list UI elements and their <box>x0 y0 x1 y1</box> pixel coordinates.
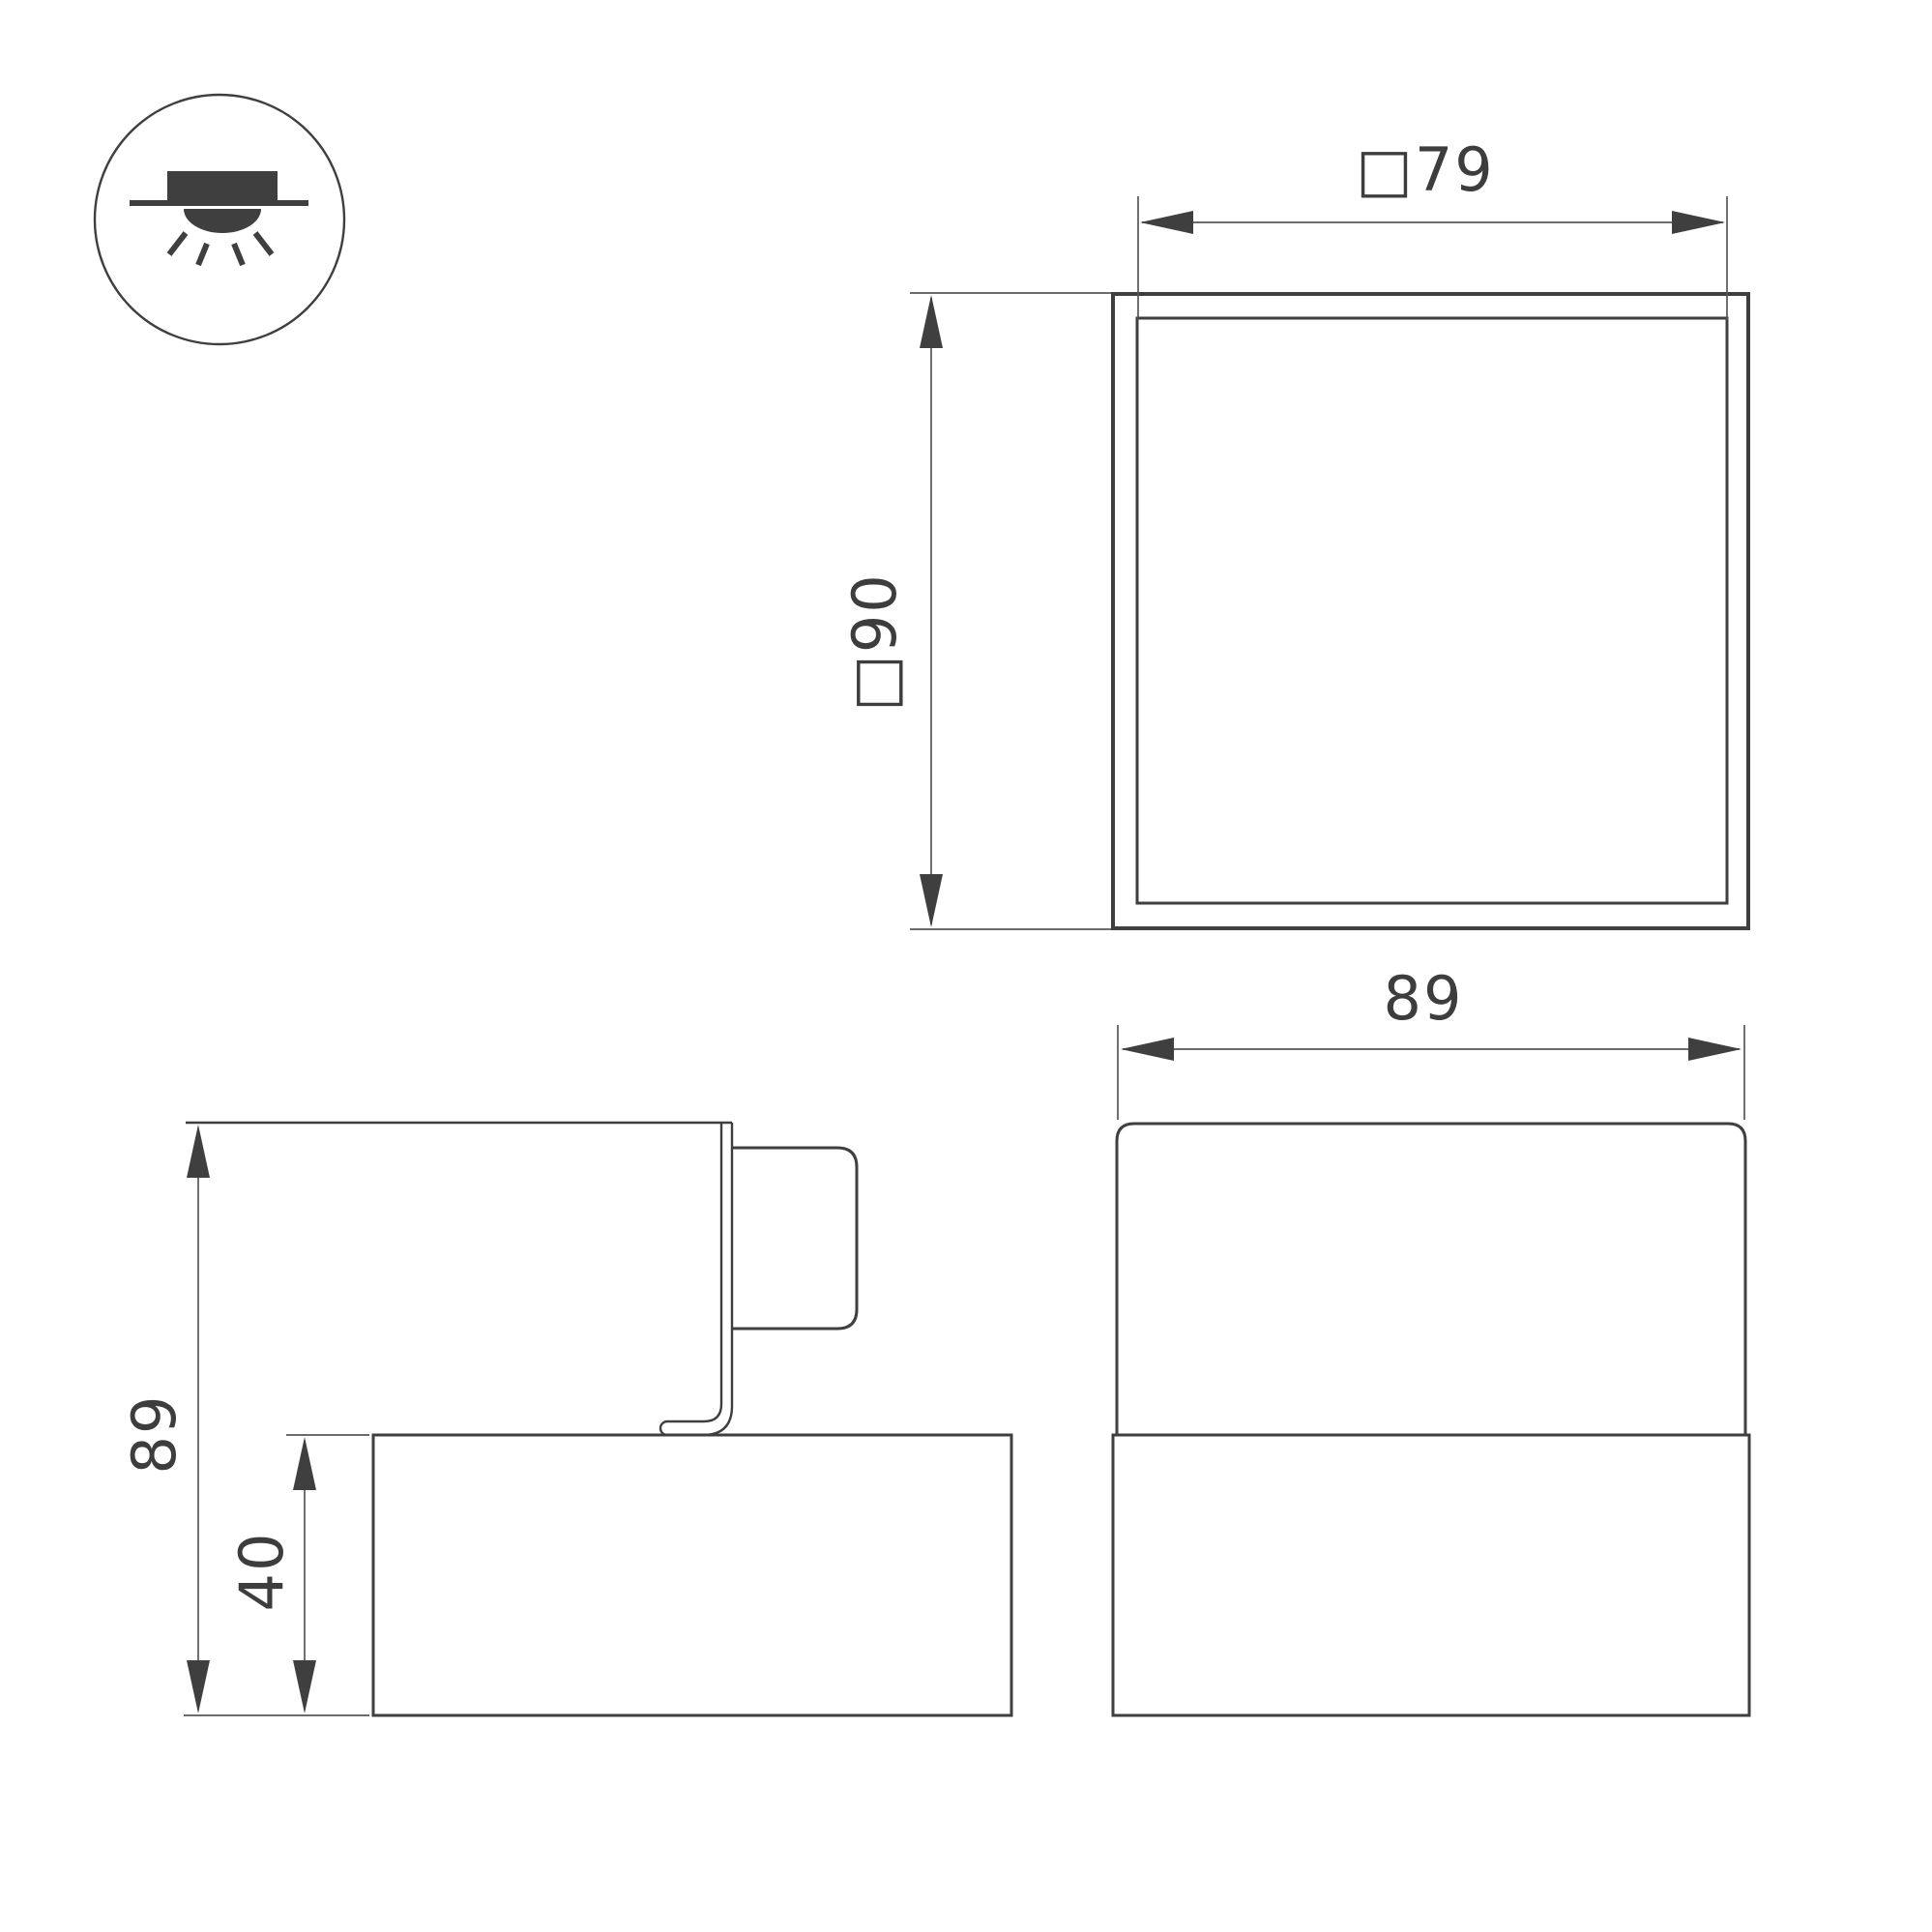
dimension-label-side-height: 89 <box>125 1394 185 1475</box>
arrow-down <box>187 1660 210 1713</box>
top-view-inner-square <box>1137 318 1727 903</box>
arrow-left <box>1140 211 1193 234</box>
dimension-side-height <box>184 1125 369 1715</box>
drawing-linework <box>0 0 1932 1932</box>
top-view <box>910 196 1748 929</box>
arrow-up <box>293 1437 316 1490</box>
icon-light-ray <box>234 244 243 265</box>
icon-light-ray <box>169 233 186 254</box>
side-view-bracket-cap <box>660 1421 667 1435</box>
dimension-label-top-width: □79 <box>1356 140 1494 200</box>
arrow-up <box>187 1125 210 1178</box>
dimension-label-top-height: □90 <box>845 572 905 711</box>
arrow-down <box>920 874 943 927</box>
arrow-down <box>293 1660 316 1713</box>
dimension-top-height <box>910 293 1111 929</box>
dimension-top-width <box>1138 196 1727 320</box>
dimension-side-base-height <box>286 1435 369 1713</box>
arrow-right <box>1672 211 1725 234</box>
icon-ceiling-line <box>130 200 308 206</box>
surface-mount-light-icon <box>95 95 344 344</box>
icon-fixture-body <box>167 171 278 204</box>
arrow-left <box>1121 1038 1174 1061</box>
dimension-label-side-base-height: 40 <box>232 1532 292 1612</box>
front-view-head <box>1117 1124 1745 1435</box>
side-view-mount-box <box>732 1148 857 1329</box>
dimension-front-width <box>1118 1025 1744 1120</box>
dimension-label-front-width: 89 <box>1384 969 1464 1029</box>
dimension-drawing: □79 □90 89 89 40 <box>0 0 1932 1932</box>
icon-light-ray <box>198 244 207 265</box>
top-view-outer-square <box>1113 294 1748 928</box>
side-view-base <box>373 1435 1011 1715</box>
front-view <box>1113 1025 1749 1715</box>
arrow-up <box>920 295 943 348</box>
icon-light-dome <box>184 209 261 233</box>
arrow-right <box>1688 1038 1742 1061</box>
side-view <box>184 1123 1011 1715</box>
icon-light-ray <box>255 233 272 254</box>
side-view-bracket-inner <box>667 1123 721 1421</box>
front-view-base <box>1113 1435 1749 1715</box>
